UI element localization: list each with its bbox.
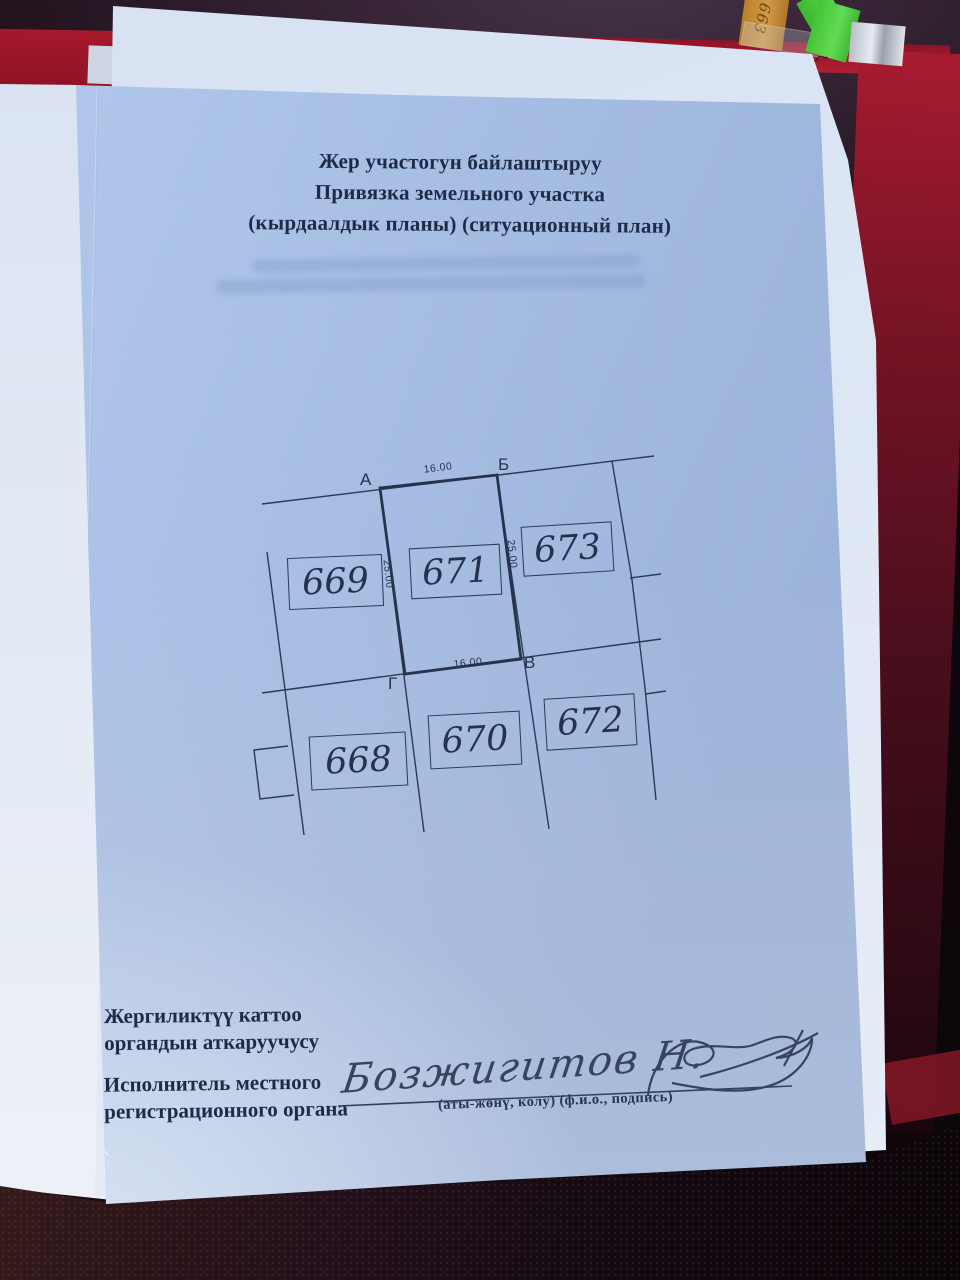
corner-label-b: Б — [498, 455, 509, 475]
title-line-ky: Жер участогун байлаштыруу — [200, 145, 720, 181]
parcel-box-669: 669 — [287, 554, 384, 610]
executor-ru-line2: регистрационного органа — [104, 1095, 348, 1125]
executor-label-russian: Исполнитель местного регистрационного ор… — [104, 1068, 348, 1125]
parcel-number: 672 — [556, 700, 625, 744]
corner-label-v: В — [524, 653, 535, 673]
red-folder-bottom-corner — [881, 1049, 960, 1125]
executor-label-kyrgyz: Жергиликтүү каттоо органдын аткаруучусу — [104, 1001, 319, 1057]
corner-label-g: Г — [388, 674, 397, 694]
parcel-number: 668 — [324, 739, 393, 782]
corner-label-a: А — [360, 470, 371, 490]
executor-ky-line2: органдын аткаруучусу — [104, 1028, 319, 1057]
parcel-box-670: 670 — [428, 711, 523, 770]
dim-top: 16.00 — [417, 460, 458, 477]
title-line-ru: Привязка земельного участка — [200, 176, 720, 212]
branch-right-upper — [630, 574, 661, 578]
dim-bottom: 16.00 — [447, 655, 488, 671]
dim-right: 25.00 — [504, 533, 520, 574]
parcel-box-672: 672 — [543, 693, 637, 750]
parcel-box-671: 671 — [409, 544, 503, 600]
left-bracket-mark — [254, 746, 294, 799]
executor-ru-line1: Исполнитель местного — [104, 1068, 348, 1098]
branch-right-lower — [646, 691, 666, 694]
title-line-plan: (кырдаалдык планы) (ситуационный план) — [200, 207, 720, 243]
show-through-text-line — [252, 254, 640, 272]
document-title: Жер участогун байлаштыруу Привязка земел… — [200, 145, 721, 243]
parcel-number: 669 — [301, 561, 369, 604]
fence-line-top — [262, 456, 654, 504]
boundary-right — [612, 461, 656, 800]
parcel-box-668: 668 — [309, 731, 409, 790]
parcel-number: 671 — [421, 550, 490, 593]
parcel-number: 673 — [533, 527, 602, 571]
paper-stack-edge — [848, 22, 905, 67]
parcel-box-673: 673 — [521, 521, 615, 576]
executor-ky-line1: Жергиликтүү каттоо — [104, 1001, 319, 1030]
document-page: Жер участогун байлаштыруу Привязка земел… — [0, 0, 960, 1280]
parcel-number: 670 — [441, 718, 510, 761]
show-through-text-line — [216, 274, 646, 294]
